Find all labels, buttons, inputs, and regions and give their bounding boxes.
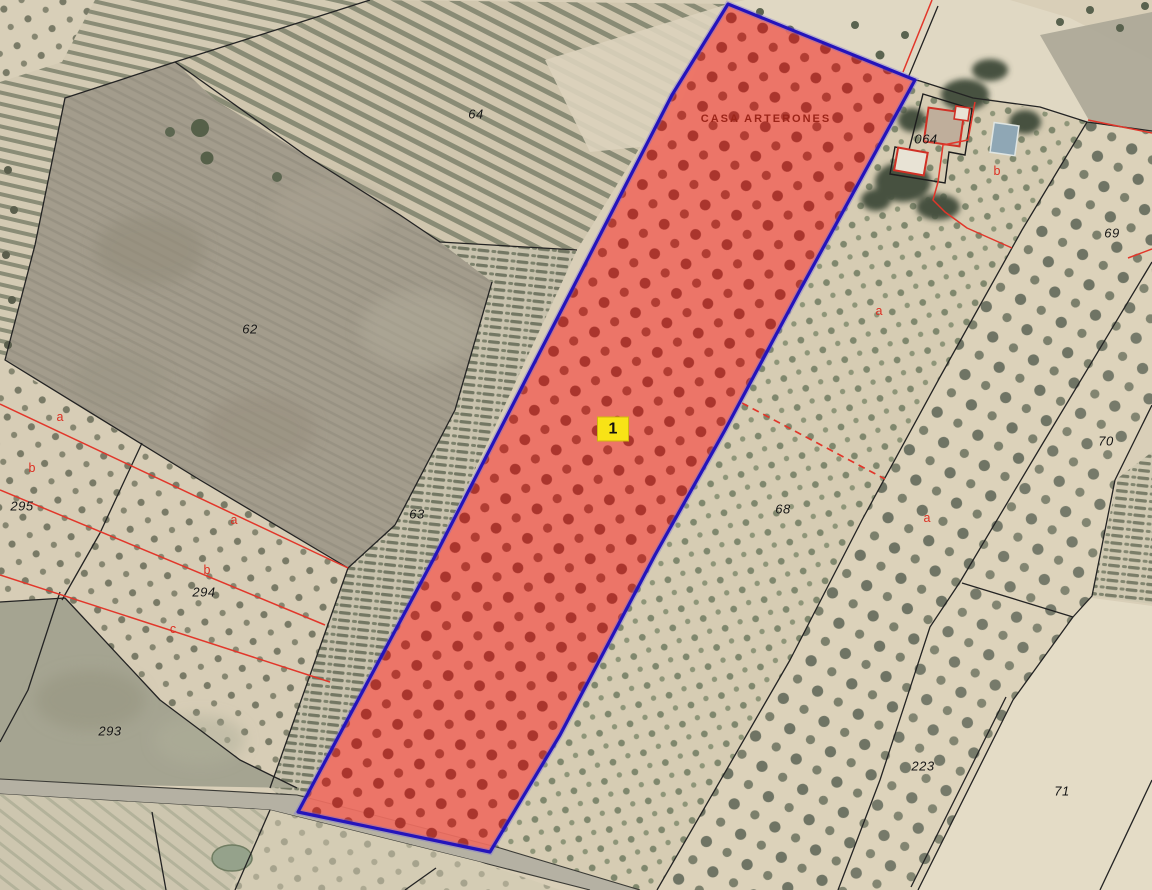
building-annex [954,106,970,121]
pond [212,845,252,871]
swimming-pool [990,122,1019,155]
small-building [894,148,928,176]
aerial-basemap [0,0,1152,890]
map-viewport[interactable]: 64 62 63 68 69 70 71 223 293 294 295 064… [0,0,1152,890]
